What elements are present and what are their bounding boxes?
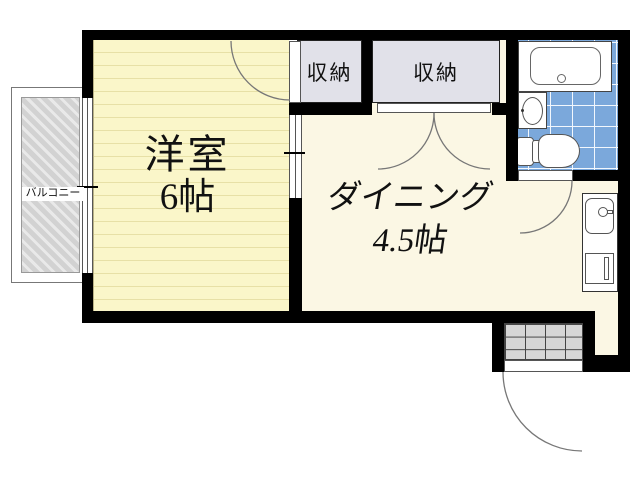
western-room-size: 6帖 [105,179,270,218]
entrance-door-arc [503,372,582,451]
washbasin-faucet-dot [521,109,524,112]
western-room-door-leaf [289,41,301,103]
kitchen-appliance-handle [604,257,609,280]
toilet-bowl-icon [538,134,580,168]
closet-small: 収納 [297,40,362,103]
wall-top [82,30,630,40]
washbasin-bowl [522,97,543,125]
wall-bath-left [506,30,518,181]
partition-door-tick [284,152,305,154]
dining-room-name: ダイニング [322,181,498,216]
entrance-door-leaf [504,360,583,372]
partition-sliding-door [289,115,302,198]
floorplan-canvas: 収納 収納 洋室 [0,0,640,480]
genkan-tile-area [504,323,583,360]
closet-small-label: 収納 [307,57,353,87]
closet-double-door-leaf [377,103,491,113]
kitchen-faucet-stub [607,210,613,214]
western-room-name: 洋室 [105,134,270,176]
balcony-hatch-pattern [21,97,80,273]
wall-partition-lower [289,198,302,311]
wall-left-upper [82,30,93,98]
closet-large: 収納 [372,40,500,103]
wall-bottom-right [595,355,630,372]
bathroom-door-leaf [518,170,573,181]
bathtub-drain-icon [557,74,566,83]
wall-right [618,30,630,372]
wall-partition-under-closet [289,103,362,115]
dining-room-size: 4.5帖 [323,224,498,259]
dining-floor-strip [595,311,618,355]
wall-between-closets [362,30,372,115]
closet-large-label: 収納 [413,57,459,87]
kitchen-appliance [585,253,614,284]
wall-genkan-left [492,311,504,372]
wall-genkan-right [583,311,595,372]
wall-bottom [82,311,595,323]
balcony-label: バルコニー [22,187,84,201]
